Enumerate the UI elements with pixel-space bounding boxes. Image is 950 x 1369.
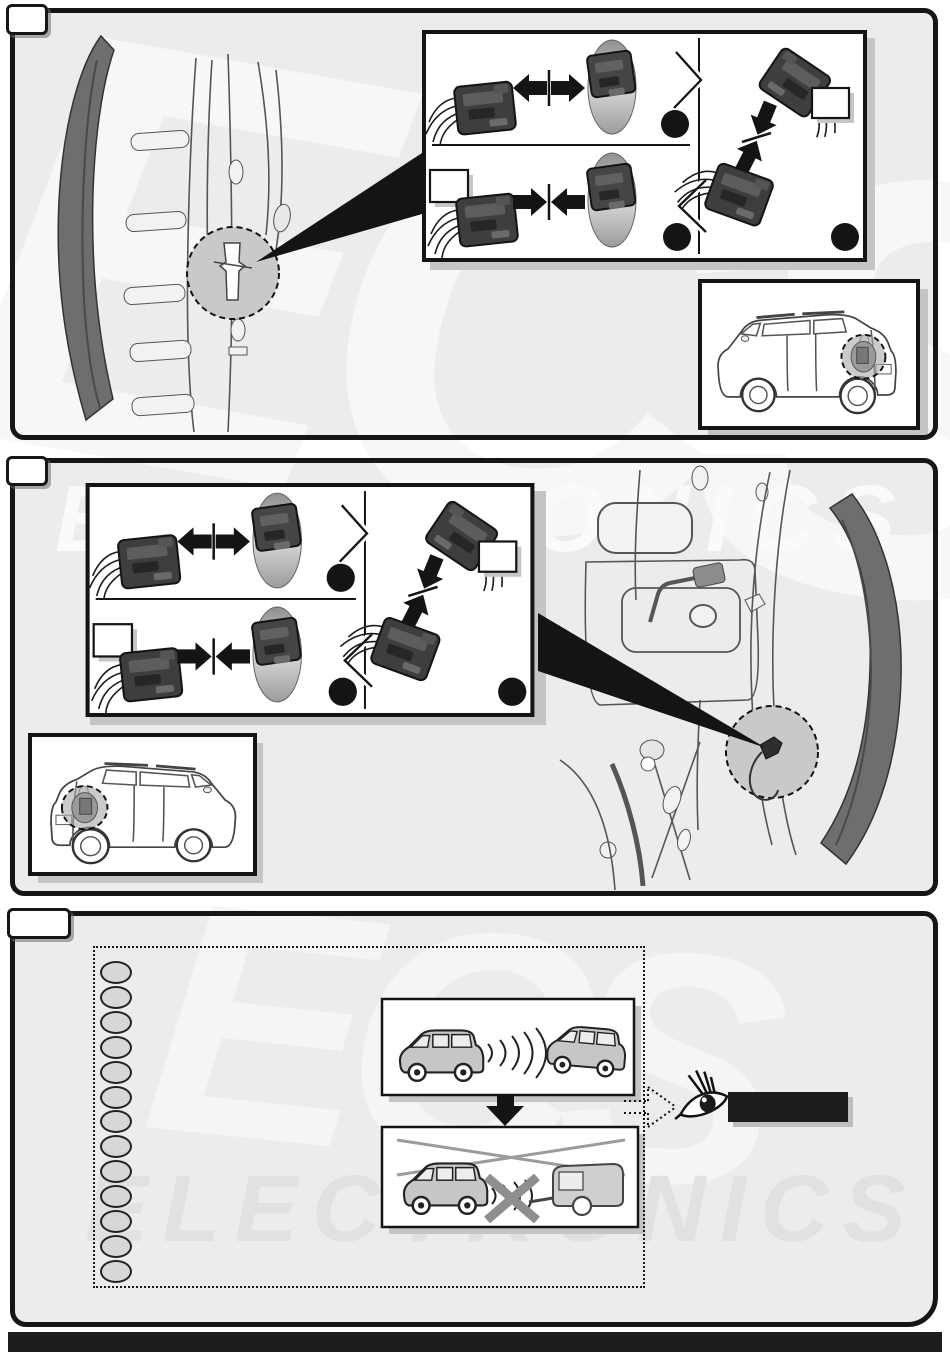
instruction-sheet-page: ECS ELECTRONICS ECS ELECTRONICS (0, 0, 950, 1369)
step2-tab (6, 456, 48, 486)
panel3-frame (10, 911, 938, 1327)
step1-tab (6, 4, 48, 35)
footer-title-bar (8, 1332, 942, 1352)
panel1-frame (10, 8, 938, 440)
step3-tab (7, 908, 71, 939)
panel2-frame (10, 458, 938, 896)
